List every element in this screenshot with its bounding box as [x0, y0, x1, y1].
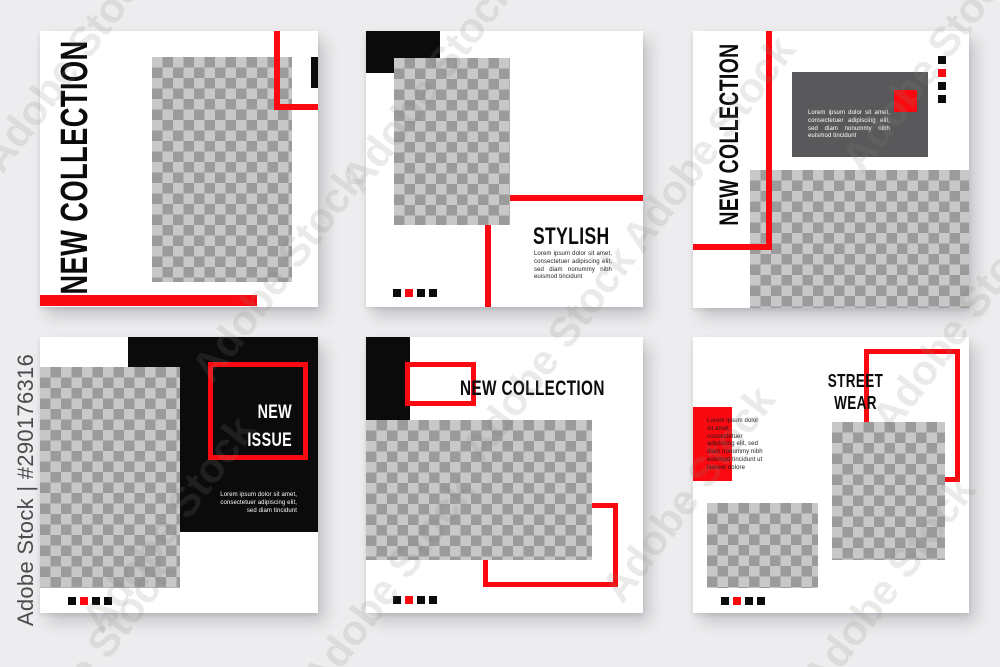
palette-swatch: [938, 82, 946, 90]
card-title-vertical: NEW COLLECTION: [709, 48, 749, 220]
card-title: NEW ISSUE: [218, 399, 292, 455]
palette-swatch: [417, 289, 425, 297]
red-corner-line-vertical: [766, 31, 772, 250]
panel-body-text: Lorem ipsum dolor sit amet, consectetuer…: [808, 110, 890, 141]
palette-swatch: [405, 596, 413, 604]
palette-swatch: [938, 69, 946, 77]
image-placeholder: [394, 58, 510, 225]
image-placeholder-small: [707, 503, 818, 588]
stock-id-watermark: Adobe Stock | #290176316: [14, 340, 38, 640]
template-card-street-wear: STREET WEAR Lorem ipsum dolor sit amet, …: [693, 337, 969, 613]
palette-swatch: [393, 596, 401, 604]
color-swatches: [721, 597, 765, 605]
color-swatches: [938, 56, 946, 103]
red-accent-square: [894, 90, 917, 112]
red-corner-line-horizontal: [693, 244, 772, 250]
image-placeholder: [152, 57, 292, 282]
image-placeholder: [40, 367, 180, 588]
palette-swatch: [721, 597, 729, 605]
card-title-line2: ISSUE: [237, 427, 293, 455]
palette-swatch: [938, 56, 946, 64]
card-body-text: Lorem ipsum dolor sit amet, consectetuer…: [534, 251, 612, 282]
card-body-text: Lorem ipsum dolor sit amet, consectetuer…: [707, 418, 765, 473]
color-swatches: [393, 596, 437, 604]
palette-swatch: [393, 289, 401, 297]
template-card-stylish: STYLISH Lorem ipsum dolor sit amet, cons…: [366, 31, 643, 307]
red-divider-horizontal: [510, 195, 643, 201]
palette-swatch: [745, 597, 753, 605]
palette-swatch: [92, 597, 100, 605]
card-title-line1: STREET: [820, 370, 891, 392]
palette-swatch: [80, 597, 88, 605]
color-swatches: [393, 289, 437, 297]
palette-swatch: [733, 597, 741, 605]
black-corner-block: [366, 337, 410, 420]
card-body-text: Lorem ipsum dolor sit amet, consectetuer…: [212, 492, 297, 515]
palette-swatch: [68, 597, 76, 605]
template-card-new-collection-3: NEW COLLECTION: [366, 337, 643, 613]
palette-swatch: [938, 95, 946, 103]
card-title-vertical: NEW COLLECTION: [54, 47, 98, 287]
palette-swatch: [405, 289, 413, 297]
stock-image-preview: NEW COLLECTION STYLISH Lorem ipsum dolor…: [0, 0, 1000, 667]
template-card-new-issue: NEW ISSUE Lorem ipsum dolor sit amet, co…: [40, 337, 318, 613]
red-corner-line-vertical: [274, 31, 280, 110]
red-bottom-bar: [40, 295, 257, 306]
card-title: STREET WEAR: [808, 370, 903, 414]
image-placeholder-large: [832, 422, 945, 560]
image-placeholder: [366, 420, 592, 560]
image-placeholder: [750, 170, 969, 308]
card-title-line1: NEW: [237, 399, 293, 427]
card-title: NEW COLLECTION: [460, 377, 605, 401]
black-edge-bar: [311, 57, 318, 88]
red-corner-line-horizontal: [274, 104, 318, 110]
template-card-new-collection-2: NEW COLLECTION Lorem ipsum dolor sit ame…: [693, 31, 969, 308]
color-swatches: [68, 597, 112, 605]
template-card-new-collection-1: NEW COLLECTION: [40, 31, 318, 307]
palette-swatch: [429, 596, 437, 604]
palette-swatch: [429, 289, 437, 297]
palette-swatch: [417, 596, 425, 604]
gray-text-panel: Lorem ipsum dolor sit amet, consectetuer…: [792, 72, 928, 157]
card-title-line2: WEAR: [820, 392, 891, 414]
palette-swatch: [757, 597, 765, 605]
card-title: STYLISH: [533, 223, 610, 251]
palette-swatch: [104, 597, 112, 605]
red-divider-vertical: [485, 225, 491, 307]
